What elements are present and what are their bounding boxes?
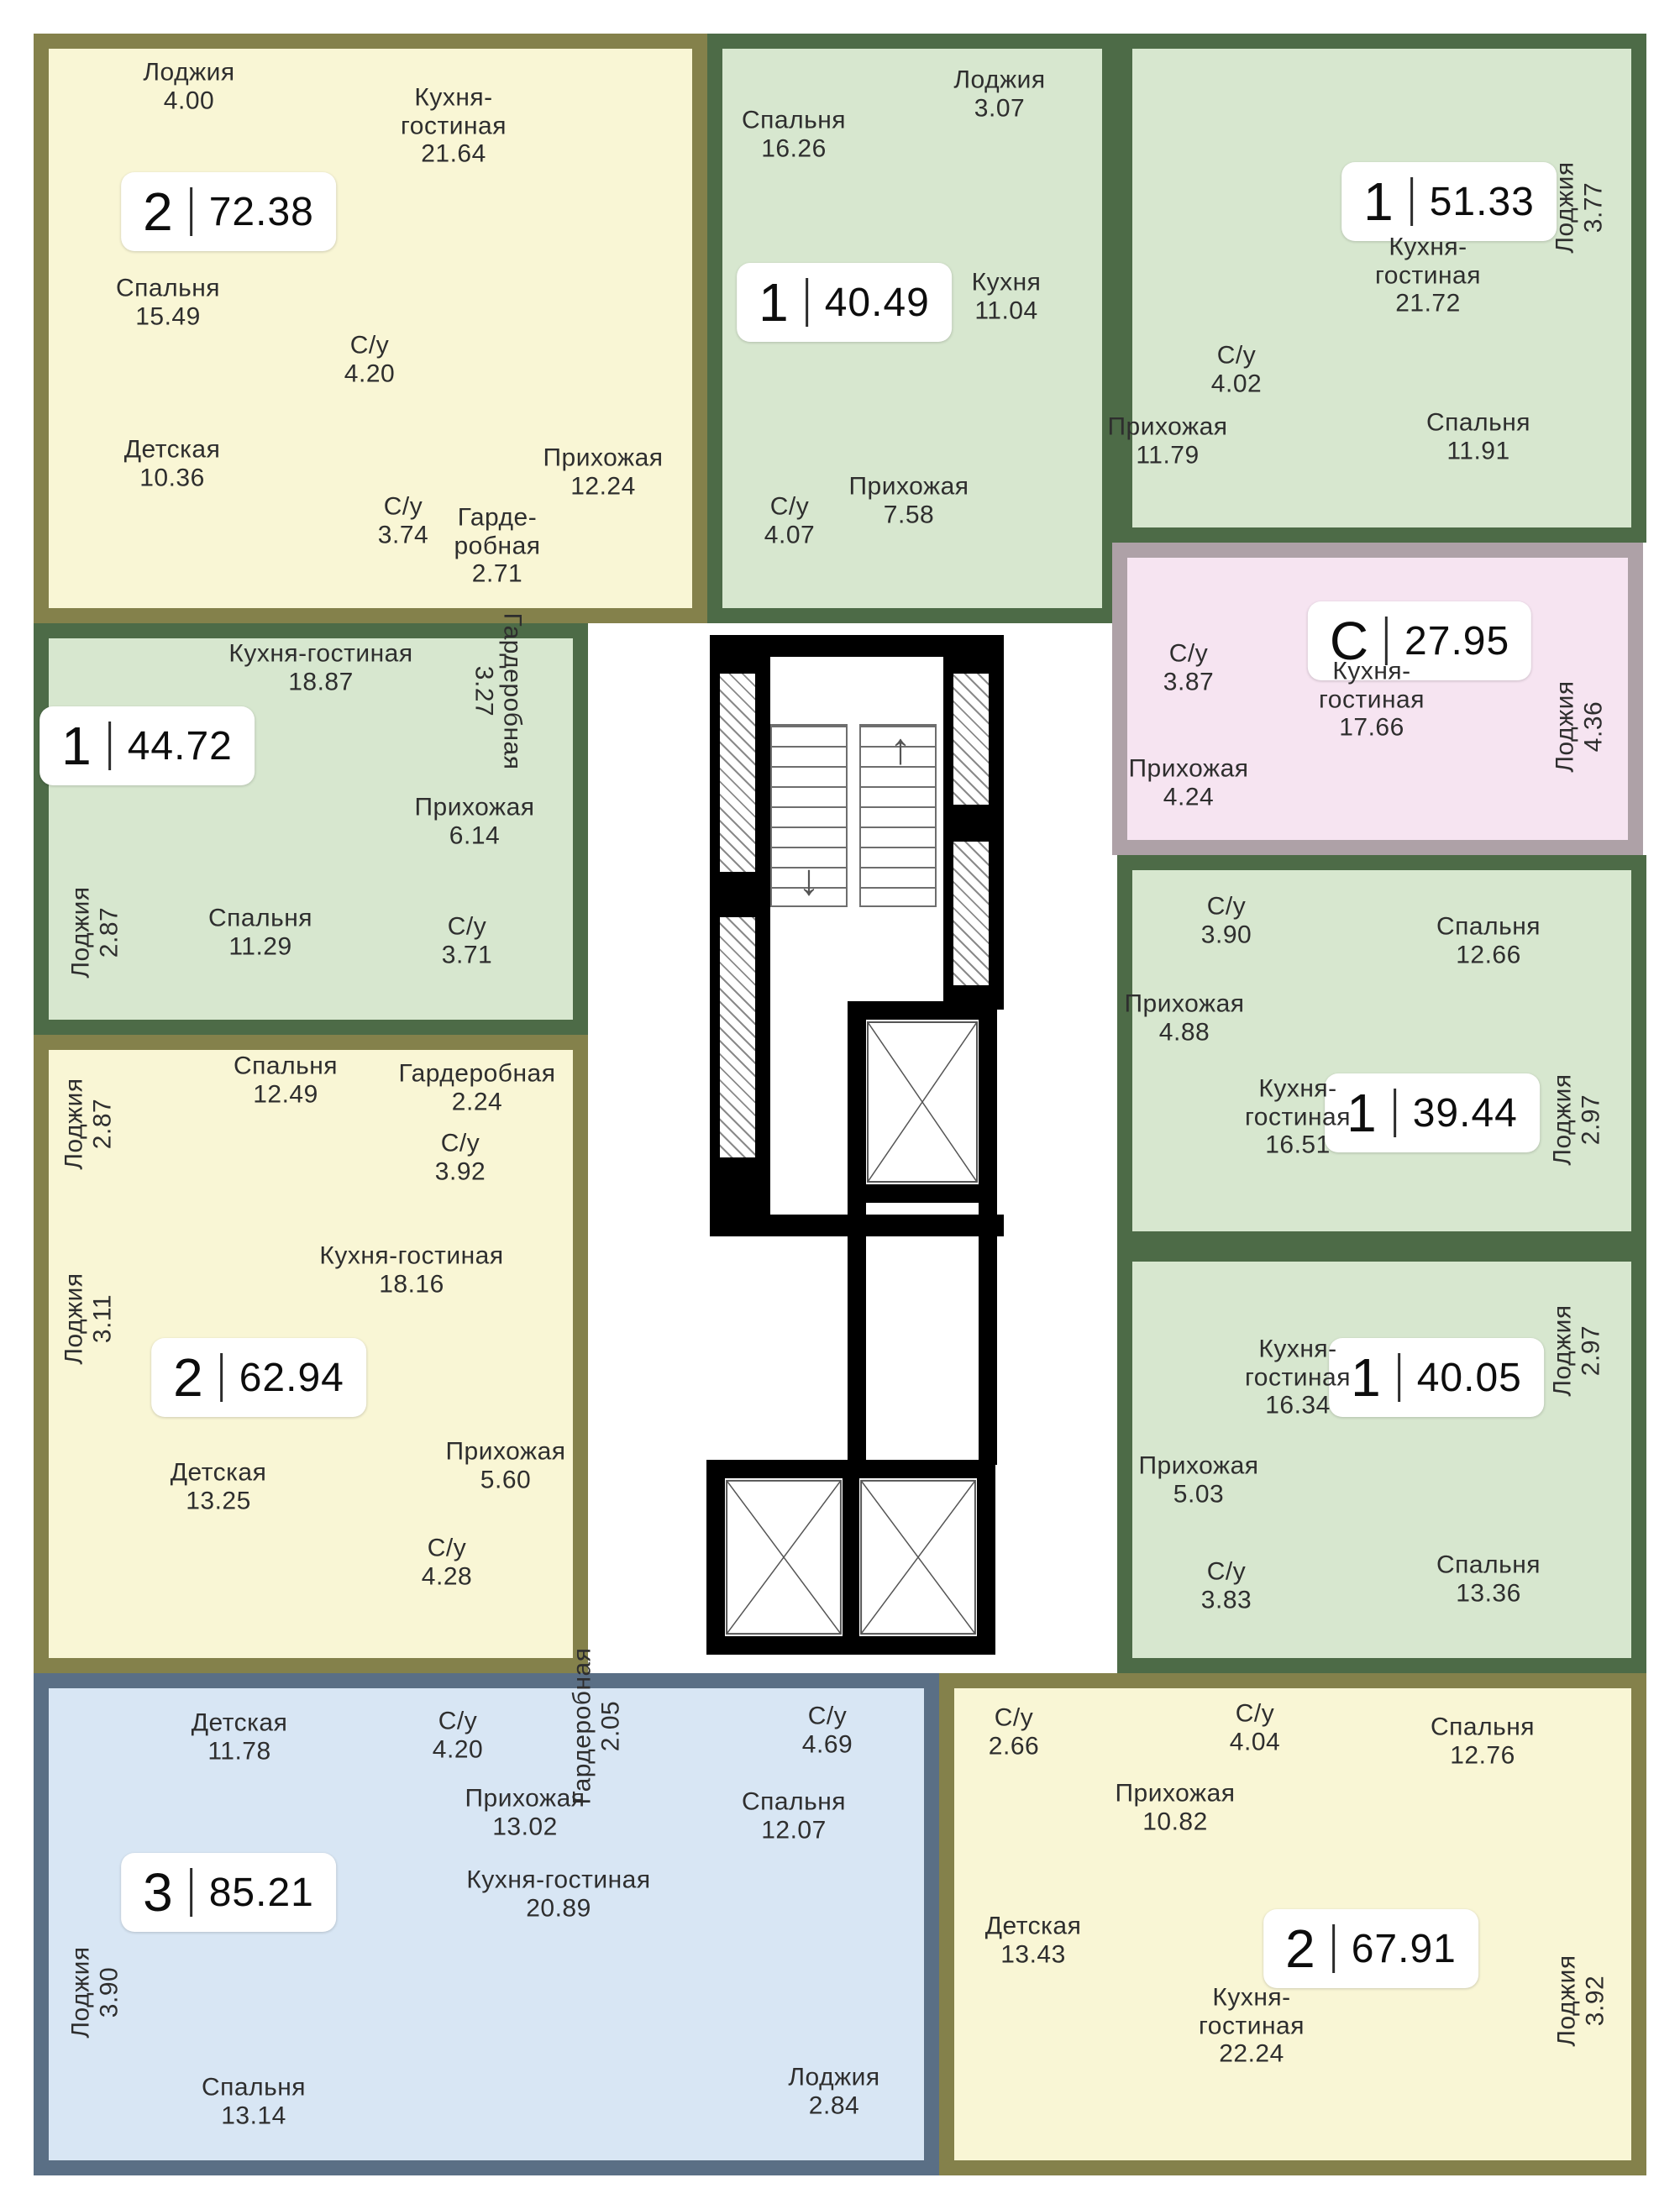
core-window-hatch [952,672,990,806]
badge-area: 62.94 [239,1355,344,1401]
room-label: Спальня16.26 [742,106,846,162]
badge-area: 51.33 [1430,179,1535,225]
room-label: Кухня-гостиная16.51 [1223,1075,1373,1160]
badge-rooms: 1 [759,271,789,333]
room-label: Прихожая5.60 [445,1437,565,1493]
room-label: Лоджия2.97 [1548,1304,1604,1396]
apartment-badge[interactable]: 262.94 [151,1338,366,1417]
stairs-down-arrow-icon: ↓ [798,855,820,905]
room-label: С/у4.28 [422,1534,472,1590]
room-label: Гардеробная2.24 [399,1059,556,1115]
room-label: Лоджия2.97 [1548,1073,1604,1165]
staircase [770,724,937,907]
room-label: Прихожая4.88 [1124,989,1244,1046]
room-label: Лоджия2.84 [788,2063,879,2119]
room-label: Прихожая5.03 [1138,1451,1258,1508]
badge-divider [190,1868,192,1917]
room-label: Гардеробная3.27 [470,613,526,770]
room-label: С/у3.83 [1201,1557,1252,1614]
badge-divider [190,187,192,236]
room-label: Гардеробная2.05 [568,1648,624,1805]
room-label: Лоджия3.11 [60,1273,116,1364]
room-label: Лоджия2.87 [66,886,123,978]
stairs-up-arrow-icon: ↑ [890,724,911,774]
room-label: Кухня-гостиная16.34 [1223,1336,1373,1420]
badge-rooms: 2 [1285,1918,1315,1980]
room-label: С/у4.02 [1211,341,1262,397]
elevator-icon [859,1478,977,1636]
room-label: Спальня11.29 [208,904,312,960]
apartment-badge[interactable]: 140.49 [737,263,952,342]
room-label: Прихожая12.24 [543,443,663,500]
apartment-badge[interactable]: 272.38 [121,172,336,251]
room-label: Кухня-гостиная18.87 [228,639,412,695]
elevator-icon [866,1020,979,1184]
room-label: Детская10.36 [124,435,221,491]
room-label: Спальня15.49 [116,274,220,330]
room-label: Лоджия4.36 [1551,680,1607,772]
room-label: Кухня-гостиная21.72 [1353,234,1503,318]
room-label: Лоджия4.00 [143,58,234,114]
room-label: Лоджия3.90 [66,1946,123,2038]
room-label: Спальня11.91 [1426,408,1530,464]
badge-divider [220,1353,223,1402]
badge-divider [806,278,808,327]
room-label: Лоджия2.87 [60,1078,116,1169]
room-label: Детская11.78 [192,1708,288,1765]
badge-divider [1394,1089,1396,1137]
badge-divider [1332,1924,1335,1973]
twin-elevator-shaft [706,1460,995,1655]
badge-area: 72.38 [209,189,314,235]
room-label: Прихожая11.79 [1107,412,1227,469]
room-label: Спальня13.36 [1436,1551,1541,1607]
room-label: Спальня12.66 [1436,912,1541,968]
room-label: С/у4.07 [764,492,815,548]
room-label: Детская13.25 [171,1458,267,1514]
core-window-hatch [718,916,757,1159]
room-label: С/у2.66 [989,1703,1039,1760]
badge-area: 39.44 [1413,1090,1518,1136]
badge-rooms: 2 [173,1346,203,1409]
room-label: Кухня-гостиная18.16 [319,1241,503,1298]
room-label: Прихожая7.58 [848,472,969,528]
room-label: Гарде-робная2.71 [442,504,553,589]
room-label: С/у4.04 [1230,1699,1280,1755]
room-label: Спальня12.49 [234,1052,338,1108]
apartment-badge[interactable]: 385.21 [121,1853,336,1932]
badge-area: 85.21 [209,1870,314,1916]
room-label: С/у3.74 [378,492,428,548]
badge-area: 44.72 [128,723,233,769]
badge-area: 40.49 [825,280,930,326]
room-label: Кухня-гостиная20.89 [466,1866,650,1922]
badge-area: 67.91 [1352,1926,1457,1972]
room-label: С/у3.71 [442,912,492,968]
room-label: Кухня-гостиная22.24 [1177,1984,1326,2069]
room-label: Лоджия3.07 [953,66,1045,122]
shaft-divider-wall [843,1478,859,1636]
room-label: С/у3.92 [435,1129,486,1185]
badge-rooms: 3 [143,1861,173,1923]
room-label: Лоджия3.92 [1552,1955,1609,2046]
apartment-badge[interactable]: 267.91 [1263,1909,1478,1988]
room-label: Прихожая4.24 [1128,754,1248,811]
apartment-badge[interactable]: 144.72 [39,706,255,785]
elevator-hall-wall [848,1203,866,1465]
room-label: Прихожая10.82 [1115,1779,1235,1835]
elevator-hall-wall [979,1203,997,1465]
badge-rooms: 1 [1363,171,1394,233]
room-label: Прихожая13.02 [465,1784,585,1840]
room-label: Кухня11.04 [972,268,1042,324]
elevator-icon [725,1478,843,1636]
apartment-badge[interactable]: 151.33 [1341,162,1557,241]
room-label: Кухня-гостиная21.64 [379,84,528,169]
badge-area: 40.05 [1417,1355,1522,1401]
badge-divider [108,722,111,770]
room-label: Детская13.43 [985,1912,1082,1968]
badge-divider [1410,177,1413,226]
room-label: Кухня-гостиная17.66 [1297,658,1446,743]
room-label: Спальня12.76 [1431,1713,1535,1769]
room-label: Спальня12.07 [742,1787,846,1844]
room-label: С/у3.87 [1163,639,1214,695]
room-label: Спальня13.14 [202,2073,306,2129]
room-label: С/у4.20 [344,331,395,387]
room-label: Прихожая6.14 [414,793,534,849]
badge-rooms: 1 [61,715,92,777]
core-window-hatch [952,840,990,987]
room-label: С/у3.90 [1201,892,1252,948]
badge-divider [1398,1353,1400,1402]
room-label: С/у4.20 [433,1707,483,1763]
apartment-1-39-44[interactable] [1117,855,1646,1246]
elevator-shaft [848,1001,997,1203]
room-label: С/у4.69 [802,1702,853,1758]
badge-rooms: 2 [143,181,173,243]
room-label: Лоджия3.77 [1551,161,1607,253]
core-window-hatch [718,672,757,874]
